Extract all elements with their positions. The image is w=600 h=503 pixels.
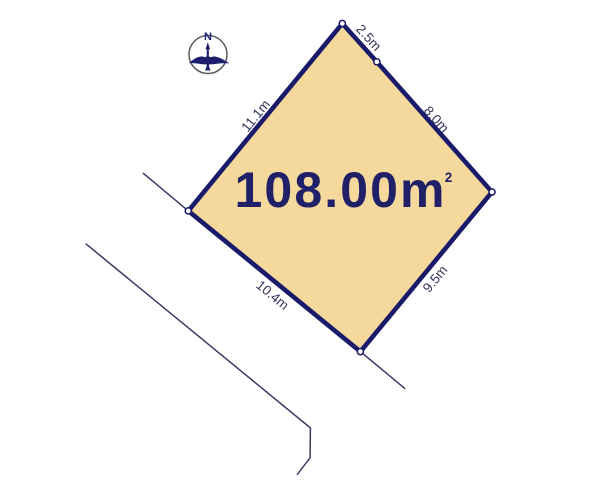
svg-text:N: N	[204, 31, 212, 43]
svg-text:108.00m: 108.00m	[235, 162, 447, 218]
svg-text:2: 2	[445, 170, 453, 185]
